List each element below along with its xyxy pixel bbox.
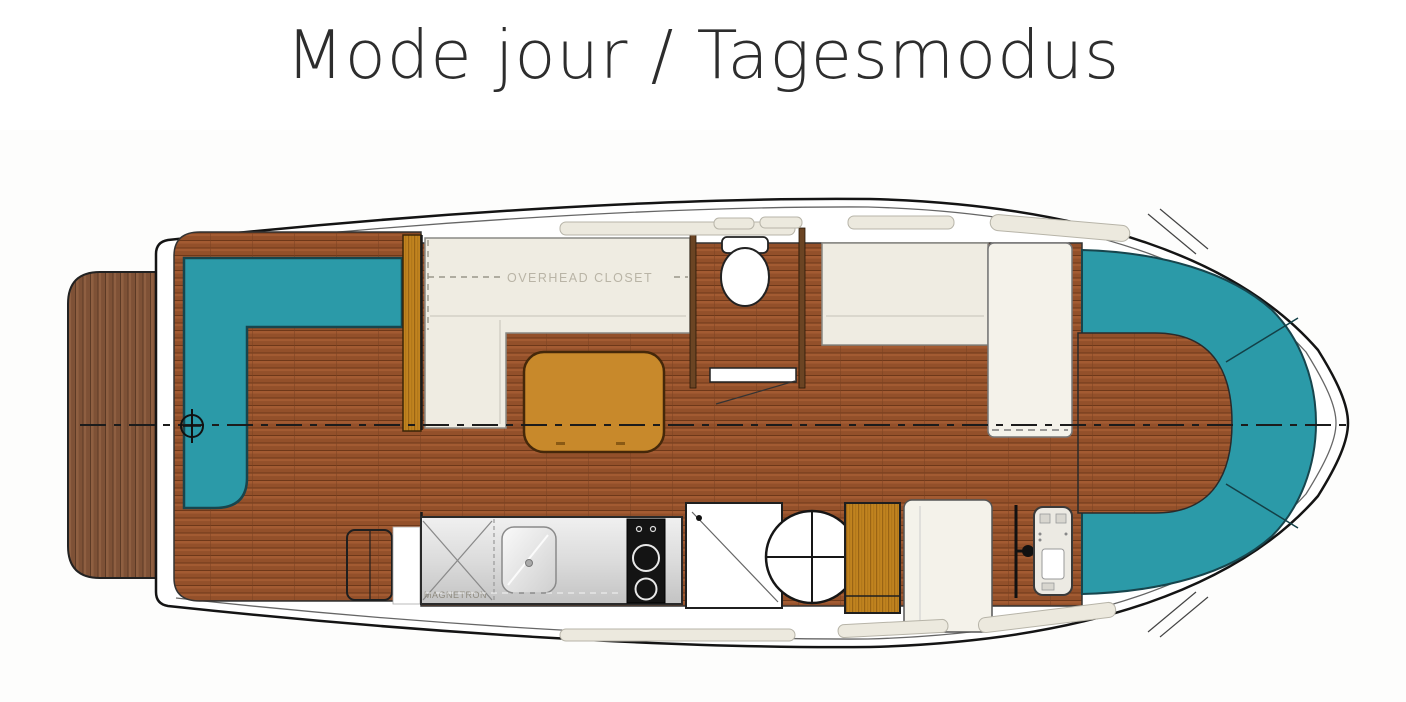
gold-cabinet-strip — [403, 235, 421, 431]
magnetron-label: MAGNETRON — [424, 590, 487, 600]
screenshot-root: Mode jour / Tagesmodus — [0, 0, 1406, 702]
cabin-sofa — [822, 243, 988, 345]
toilet-door — [710, 368, 796, 382]
toilet-wall-right — [799, 228, 805, 388]
wardrobe-cabinet — [988, 243, 1072, 437]
sink-drain — [526, 560, 533, 567]
single-berth — [904, 500, 992, 632]
deck-hatch — [848, 216, 954, 229]
dinette-table — [524, 352, 664, 452]
overhead-closet-label: OVERHEAD CLOSET — [507, 271, 653, 285]
boat-floorplan: OVERHEAD CLOSET MAGNETRON — [0, 0, 1406, 702]
toilet-wall-left — [690, 228, 696, 388]
deck-hatch — [560, 629, 795, 641]
shower-head-dot — [696, 515, 702, 521]
toilet-bowl — [721, 248, 769, 306]
deck-hatch — [760, 217, 802, 228]
companionway-entry — [393, 527, 420, 604]
deck-hatch — [714, 218, 754, 229]
bow-wood-floor — [1078, 333, 1232, 513]
